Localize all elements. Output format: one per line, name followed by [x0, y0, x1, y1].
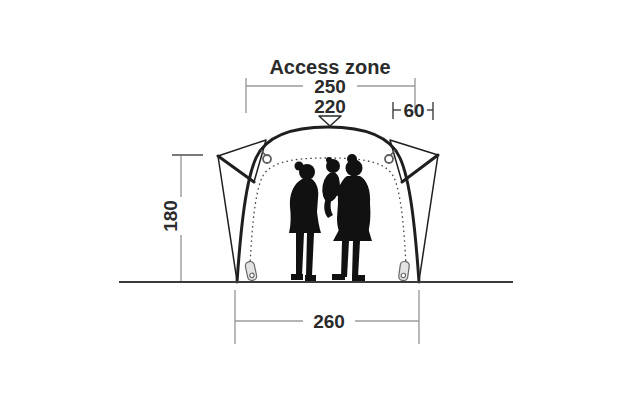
- access-zone-title: Access zone: [269, 56, 390, 78]
- dim-250-label: 250: [314, 76, 346, 97]
- peak-vent-triangle: [319, 116, 341, 126]
- right-guy-line: [419, 155, 438, 281]
- dim-220-label: 220: [314, 96, 346, 117]
- dimension-extension-60: 60: [393, 100, 433, 121]
- diagram-svg: Access zone 250 220 60 180 260: [0, 0, 640, 400]
- dim-260-label: 260: [313, 311, 345, 332]
- dimension-height-180: 180: [160, 155, 203, 281]
- dim-180-label: 180: [160, 200, 181, 232]
- dim-60-label: 60: [403, 100, 424, 121]
- tent-dimension-diagram: Access zone 250 220 60 180 260: [0, 0, 640, 400]
- left-guy-line: [218, 156, 237, 281]
- dimension-base-260: 260: [235, 290, 419, 344]
- right-zipper-pull: [398, 261, 410, 281]
